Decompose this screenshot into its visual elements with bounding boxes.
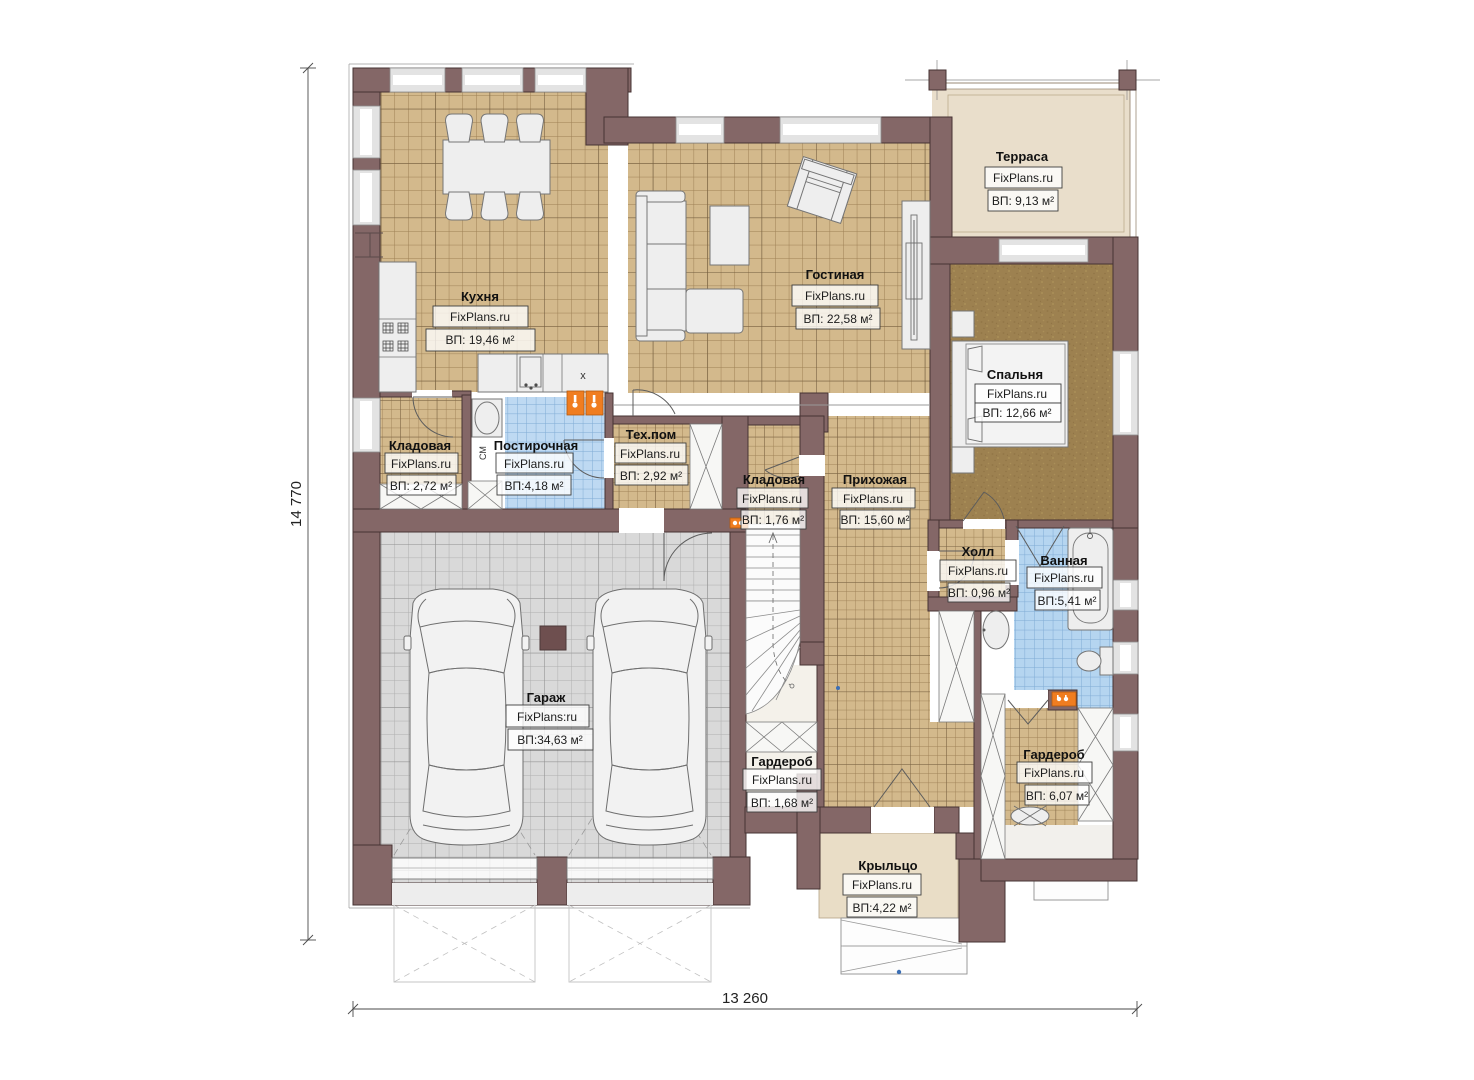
svg-text:FixPlans.ru: FixPlans.ru — [993, 171, 1053, 185]
svg-text:Гостиная: Гостиная — [806, 267, 865, 282]
svg-text:FixPlans.ru: FixPlans.ru — [852, 878, 912, 892]
svg-text:FixPlans.ru: FixPlans.ru — [450, 310, 510, 324]
svg-text:FixPlans.ru: FixPlans.ru — [987, 387, 1047, 401]
svg-text:FixPlans.ru: FixPlans.ru — [391, 457, 451, 471]
svg-text:Терраса: Терраса — [996, 149, 1049, 164]
svg-text:ВП: 19,46 м²: ВП: 19,46 м² — [446, 333, 515, 347]
svg-text:x: x — [580, 370, 586, 382]
svg-text:ВП:5,41 м²: ВП:5,41 м² — [1038, 594, 1097, 608]
svg-text:ВП: 9,13 м²: ВП: 9,13 м² — [992, 194, 1054, 208]
svg-text:FixPlans.ru: FixPlans.ru — [948, 564, 1008, 578]
svg-text:13 260: 13 260 — [722, 990, 768, 1007]
svg-text:FixPlans.ru: FixPlans.ru — [843, 492, 903, 506]
svg-text:ВП: 6,07 м²: ВП: 6,07 м² — [1026, 789, 1088, 803]
svg-text:ВП: 15,60 м²: ВП: 15,60 м² — [841, 513, 910, 527]
svg-text:ВП: 2,92 м²: ВП: 2,92 м² — [620, 469, 682, 483]
svg-text:ВП:34,63 м²: ВП:34,63 м² — [517, 733, 583, 747]
svg-text:ВП: 1,68 м²: ВП: 1,68 м² — [751, 796, 813, 810]
svg-text:ВП: 22,58 м²: ВП: 22,58 м² — [804, 312, 873, 326]
svg-text:FixPlans.ru: FixPlans.ru — [742, 492, 802, 506]
svg-text:ВП:4,18 м²: ВП:4,18 м² — [505, 479, 564, 493]
svg-text:СМ: СМ — [478, 446, 488, 460]
svg-text:FixPlans.ru: FixPlans.ru — [1034, 571, 1094, 585]
svg-text:FixPlans.ru: FixPlans.ru — [1024, 766, 1084, 780]
svg-text:FixPlans:ru: FixPlans:ru — [517, 710, 577, 724]
svg-text:FixPlans.ru: FixPlans.ru — [805, 289, 865, 303]
svg-text:Тех.пом: Тех.пом — [626, 427, 676, 442]
svg-text:FixPlans.ru: FixPlans.ru — [504, 457, 564, 471]
svg-text:14 770: 14 770 — [288, 481, 305, 527]
svg-text:Спальня: Спальня — [987, 367, 1043, 382]
svg-text:Постирочная: Постирочная — [494, 438, 578, 453]
svg-text:Кладовая: Кладовая — [743, 472, 805, 487]
svg-text:Ванная: Ванная — [1040, 553, 1087, 568]
svg-text:Гараж: Гараж — [527, 690, 567, 705]
svg-text:Прихожая: Прихожая — [843, 472, 907, 487]
svg-text:FixPlans.ru: FixPlans.ru — [620, 447, 680, 461]
svg-text:Гардероб: Гардероб — [1023, 747, 1084, 762]
svg-text:ВП: 2,72 м²: ВП: 2,72 м² — [390, 479, 452, 493]
svg-text:ВП: 1,76 м²: ВП: 1,76 м² — [742, 513, 804, 527]
svg-text:ВП: 12,66 м²: ВП: 12,66 м² — [983, 406, 1052, 420]
svg-text:FixPlans.ru: FixPlans.ru — [752, 773, 812, 787]
svg-text:ВП: 0,96 м²: ВП: 0,96 м² — [948, 586, 1010, 600]
svg-text:Крыльцо: Крыльцо — [858, 858, 917, 873]
svg-text:Кухня: Кухня — [461, 289, 499, 304]
svg-text:Кладовая: Кладовая — [389, 438, 451, 453]
svg-text:Холл: Холл — [962, 544, 995, 559]
svg-text:Гардероб: Гардероб — [751, 754, 812, 769]
svg-text:ВП:4,22 м²: ВП:4,22 м² — [853, 901, 912, 915]
